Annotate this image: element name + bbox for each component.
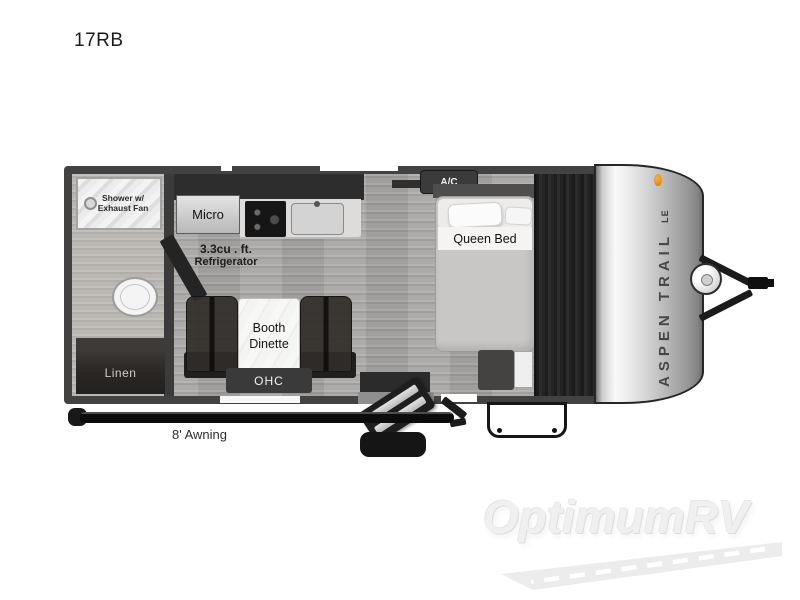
overhead-cabinet: OHC <box>226 368 312 393</box>
window-top-small <box>221 163 232 171</box>
awning-bar <box>80 412 454 423</box>
shower-drain-icon <box>84 197 97 210</box>
queen-bed-label-strip: Queen Bed <box>438 227 532 250</box>
road-icon <box>497 540 789 590</box>
watermark-wordmark: OptimumRV <box>483 490 749 544</box>
floorplan-page: 17RB Shower w/ Exhaust Fan Linen Micro <box>0 0 800 600</box>
hitch-coupler <box>748 277 768 289</box>
brand-text: ASPEN TRAIL LE <box>656 196 692 400</box>
microwave: Micro <box>176 195 240 234</box>
toilet-seat-icon <box>120 284 150 310</box>
booth-dinette-table: Booth Dinette <box>238 298 300 376</box>
bathroom-divider-wall <box>164 174 174 396</box>
awning-label: 8' Awning <box>172 427 282 442</box>
propane-valve-icon <box>701 274 713 286</box>
bed-foot-ottoman <box>478 350 514 390</box>
pillow-icon <box>505 206 533 225</box>
stove-icon <box>245 201 286 237</box>
ohc-label: OHC <box>254 374 284 388</box>
linen-cabinet: Linen <box>76 338 165 394</box>
window-top-kitchen <box>320 163 398 171</box>
dinette-bench-left <box>186 296 238 372</box>
sink-icon <box>291 203 344 235</box>
entry-step-base <box>360 432 426 457</box>
window-bottom-trim <box>220 396 300 403</box>
faucet-icon <box>314 201 320 207</box>
microwave-label: Micro <box>192 207 224 222</box>
linen-label: Linen <box>105 352 137 380</box>
dinette-bench-right <box>300 296 352 372</box>
queen-bed-label: Queen Bed <box>453 232 516 246</box>
front-wardrobe <box>534 174 594 396</box>
shower-label: Shower w/ Exhaust Fan <box>90 194 149 214</box>
page-title: 17RB <box>74 30 124 52</box>
bed-foot-step <box>514 351 533 388</box>
hitch-coupler-tip <box>766 279 774 287</box>
marker-light-icon <box>654 174 662 186</box>
pillow-icon <box>447 202 502 229</box>
brand-badge: LE <box>660 209 670 223</box>
booth-dinette-label: Booth Dinette <box>249 321 289 352</box>
step-bolt-icon <box>497 428 502 433</box>
refrigerator-label: 3.3cu . ft. Refrigerator <box>180 242 272 270</box>
step-bolt-icon <box>552 428 557 433</box>
